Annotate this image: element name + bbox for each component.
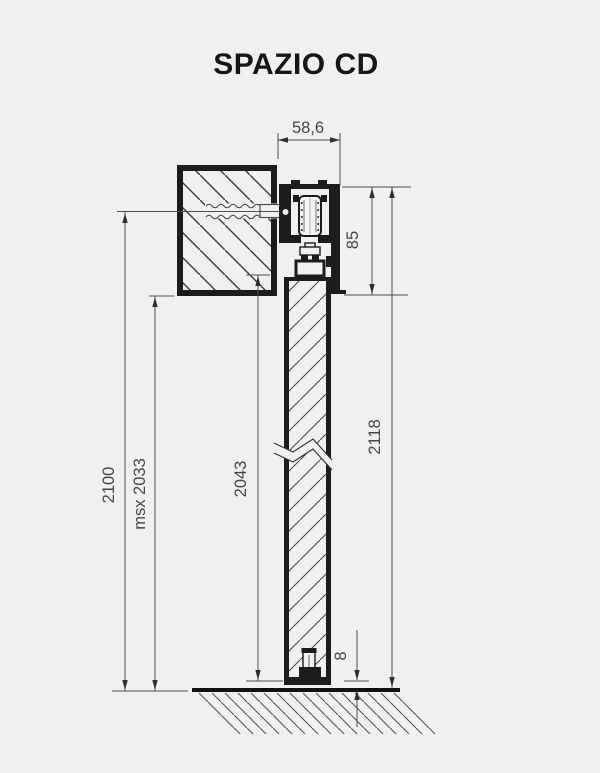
dim-label-header-height: 85 <box>344 231 362 249</box>
fixing-hole-left <box>283 209 289 215</box>
dim-header-height: 85 <box>342 187 411 295</box>
dim-label-overall-height: 2118 <box>366 419 384 454</box>
panel-top-edge <box>284 277 331 281</box>
hanger-nut <box>300 247 320 255</box>
panel-right-edge <box>326 277 331 677</box>
panel-left-edge <box>284 277 289 677</box>
dim-max-door-height: msx 2033 <box>131 296 174 691</box>
dim-label-track-width: 58,6 <box>292 119 324 137</box>
dim-overall-height: 2118 <box>366 187 395 688</box>
technical-drawing: 58,6 85 2118 2043 <box>0 0 600 773</box>
dim-label-door-leaf-height: 2043 <box>232 461 250 498</box>
dim-track-width: 58,6 <box>278 119 340 186</box>
wall-hatch-block <box>180 168 274 293</box>
dim-wall-opening-height: 2100 <box>100 212 188 691</box>
bottom-profile <box>284 677 331 685</box>
hanger-plate <box>296 261 324 276</box>
panel-hatch <box>289 281 326 671</box>
dim-label-floor-clearance: 8 <box>332 651 350 660</box>
track-top-plate <box>279 184 340 189</box>
dim-door-leaf-height: 2043 <box>232 275 283 681</box>
floor-line <box>192 688 400 692</box>
dim-label-wall-opening-height: 2100 <box>100 467 118 504</box>
drawing-sheet: SPAZIO CD <box>0 0 600 773</box>
door-panel <box>274 277 332 685</box>
wall-section <box>180 168 274 293</box>
track-bottom-lip-left <box>279 235 301 243</box>
floor <box>190 688 450 738</box>
dim-label-max-door-height: msx 2033 <box>131 458 149 530</box>
floor-hatch <box>190 693 450 738</box>
